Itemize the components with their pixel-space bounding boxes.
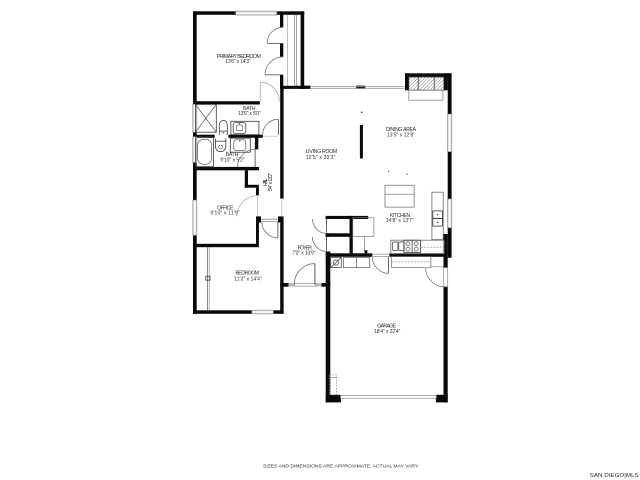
svg-text:9'10" x 11'9": 9'10" x 11'9" [210,211,239,217]
svg-text:SIZES AND DIMENSIONS ARE APPRO: SIZES AND DIMENSIONS ARE APPROXIMATE, AC… [263,463,419,469]
svg-text:5'4" x 13'2": 5'4" x 13'2" [268,173,274,191]
svg-text:18'4" x 22'4": 18'4" x 22'4" [374,329,400,335]
svg-text:7'0" x 10'9": 7'0" x 10'9" [292,251,316,257]
svg-text:14'8" x 13'7": 14'8" x 13'7" [386,218,414,224]
svg-text:SAN DIEGO|MLS: SAN DIEGO|MLS [590,473,639,479]
svg-text:11'3" x 14'4": 11'3" x 14'4" [234,276,262,282]
svg-text:12'5" x 20'3": 12'5" x 20'3" [306,155,336,161]
svg-text:9'10" x 5'2": 9'10" x 5'2" [220,158,245,164]
svg-text:13'6" x 5'0": 13'6" x 5'0" [238,111,261,117]
svg-text:13'6" x 14'3": 13'6" x 14'3" [225,59,251,65]
svg-text:13'5" x 12'8": 13'5" x 12'8" [387,133,415,139]
